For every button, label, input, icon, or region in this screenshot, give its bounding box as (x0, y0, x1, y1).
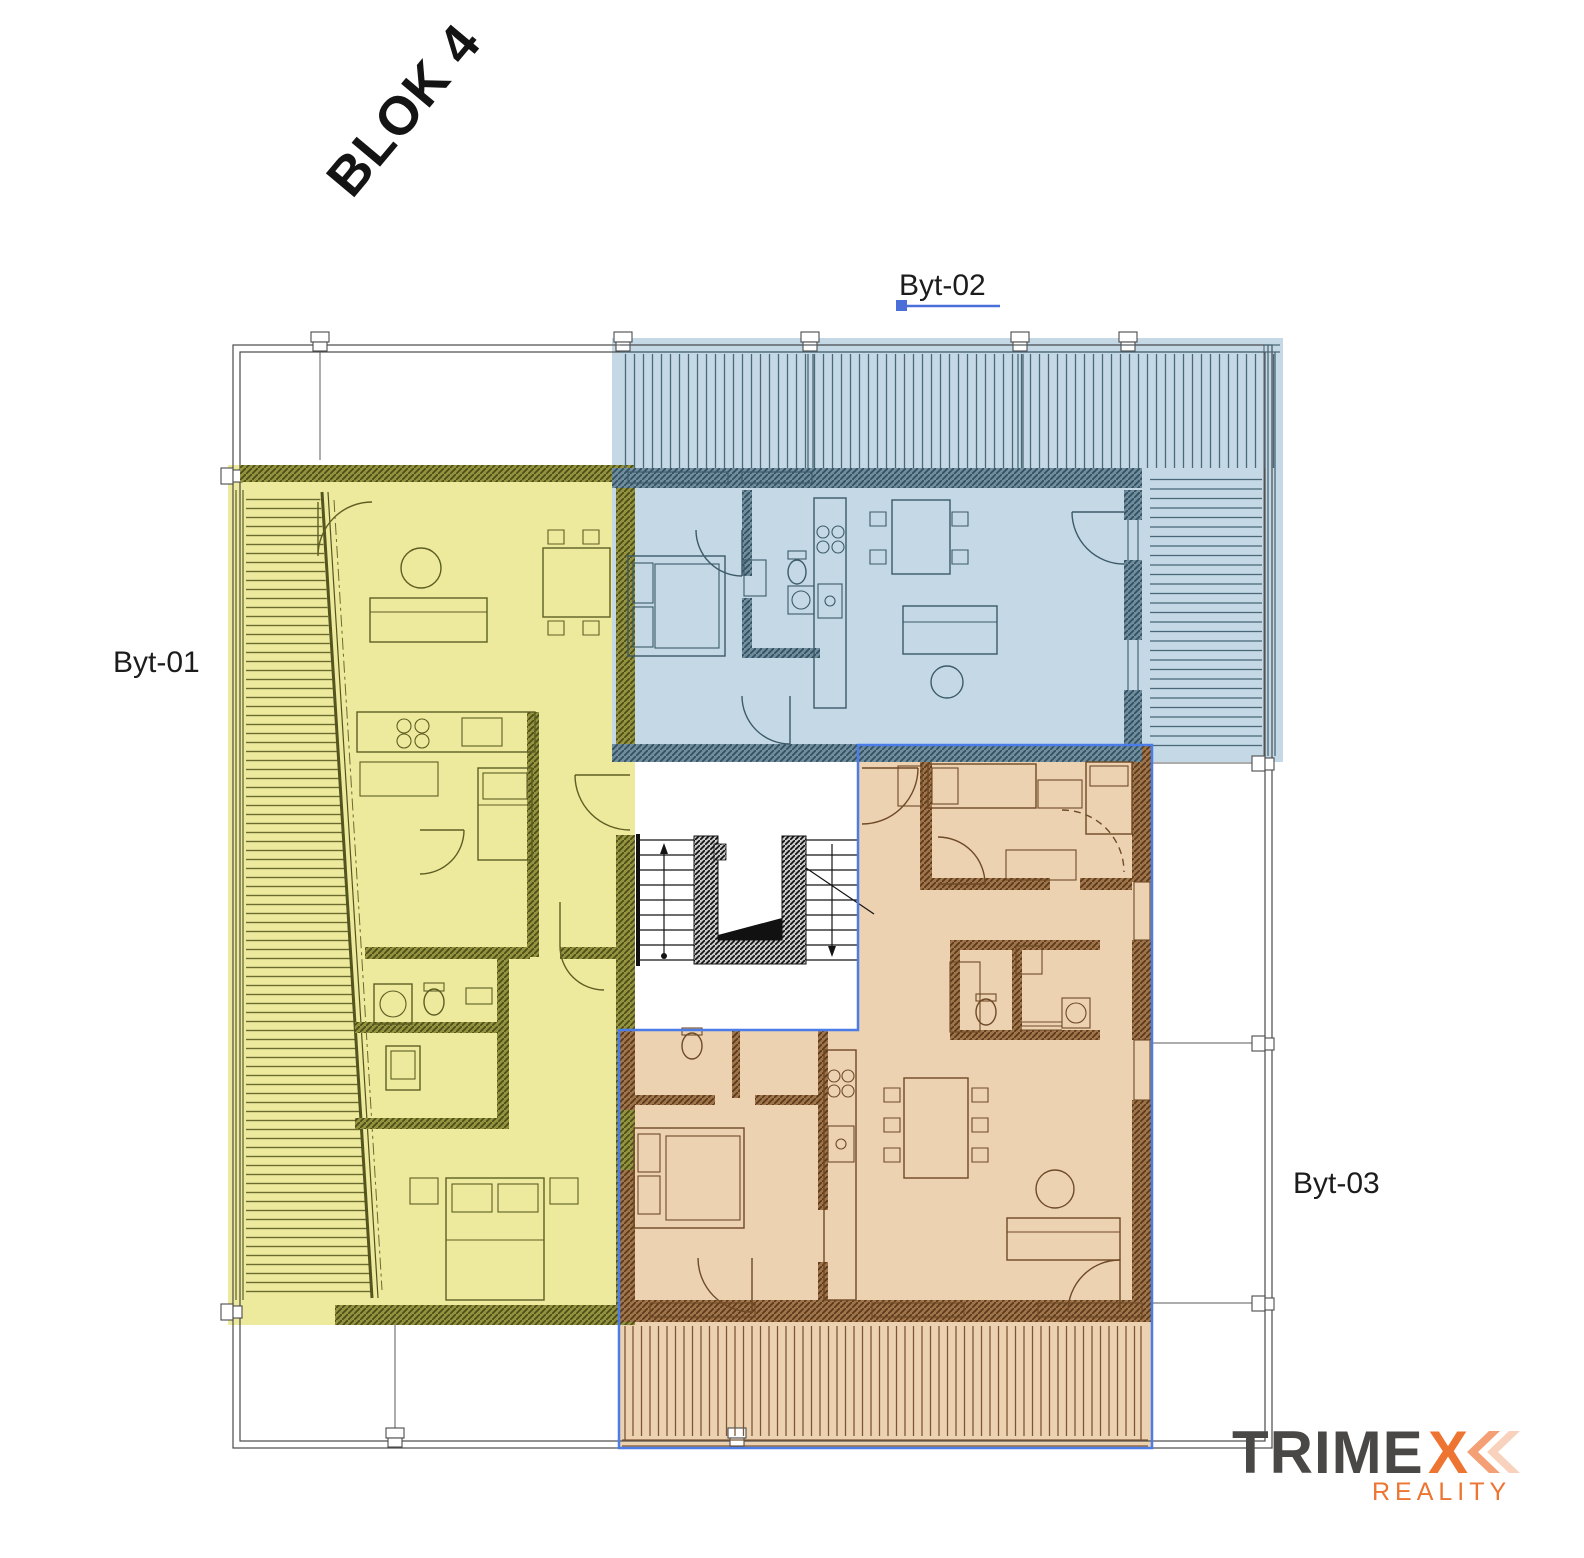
wall (732, 1030, 740, 1098)
wall (1124, 690, 1142, 744)
wall (619, 1030, 635, 1110)
wall (616, 482, 635, 760)
wall (755, 1095, 818, 1105)
block-title: BLOK 4 (315, 13, 492, 208)
logo-tagline: REALITY (1372, 1478, 1511, 1506)
stairwell-area (635, 762, 858, 1030)
wall (612, 744, 1142, 762)
wall (1080, 878, 1132, 890)
wall (527, 712, 539, 957)
wall (742, 598, 752, 656)
wall (497, 959, 509, 1129)
byt-01-label[interactable]: Byt-01 (113, 646, 200, 679)
wall (742, 648, 820, 658)
stair-start-dot (661, 953, 667, 959)
wall (635, 1095, 715, 1105)
wall (1132, 1100, 1152, 1300)
byt-02-label[interactable]: Byt-02 (899, 269, 986, 302)
terrace-decking (630, 1326, 1136, 1436)
wall (1142, 745, 1152, 762)
wall (612, 468, 1142, 488)
byt-02-underline-handle[interactable] (896, 300, 907, 311)
wall (619, 1170, 635, 1318)
floorplan-drawing: BLOK 4 Byt-01 Byt-02 Byt-03 TRIME X REAL… (0, 0, 1584, 1558)
terrace-decking (622, 354, 1278, 468)
wall (1124, 560, 1142, 640)
logo-word-accent: X (1428, 1419, 1469, 1486)
trimex-logo: TRIME X REALITY (1232, 1419, 1520, 1506)
wall (1132, 762, 1152, 882)
wall (365, 947, 530, 959)
wall (950, 950, 960, 1035)
wall (240, 465, 635, 482)
logo-word-main: TRIME (1232, 1419, 1424, 1486)
wall (950, 940, 1100, 950)
wall (818, 1030, 828, 1210)
wall (1132, 940, 1152, 1040)
floorplan-page: BLOK 4 Byt-01 Byt-02 Byt-03 TRIME X REAL… (0, 0, 1584, 1558)
wall (1012, 940, 1022, 1035)
stair-step-mark (714, 844, 726, 860)
wall (560, 947, 616, 959)
wall (335, 1305, 635, 1325)
wall (1124, 490, 1142, 520)
wall (355, 1118, 505, 1129)
byt-03-label[interactable]: Byt-03 (1293, 1167, 1380, 1200)
side-terrace-decking (1150, 478, 1262, 752)
wall (818, 1262, 828, 1302)
